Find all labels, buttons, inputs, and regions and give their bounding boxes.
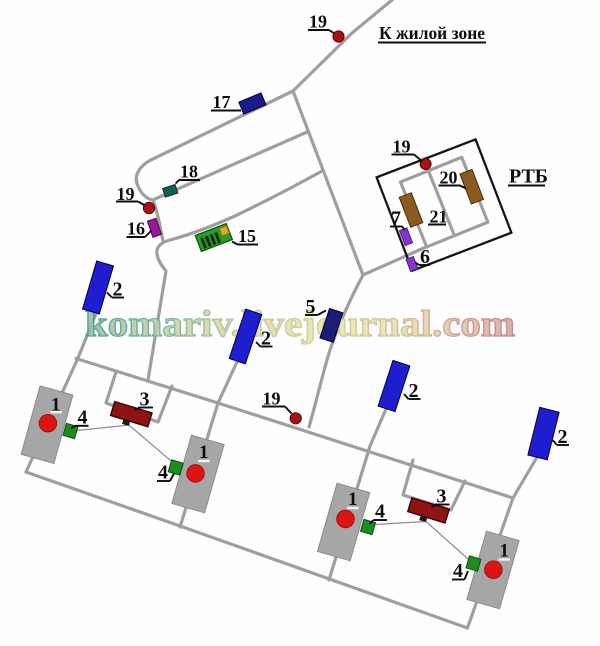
svg-text:1: 1 <box>500 541 510 562</box>
svg-text:1: 1 <box>51 395 61 416</box>
svg-text:3: 3 <box>437 486 447 508</box>
svg-text:2: 2 <box>261 328 271 350</box>
svg-text:РТБ: РТБ <box>509 166 548 188</box>
svg-text:komariv.livejournal.com: komariv.livejournal.com <box>85 304 515 345</box>
svg-text:2: 2 <box>113 279 123 301</box>
svg-text:4: 4 <box>158 462 168 484</box>
svg-text:19: 19 <box>263 389 281 409</box>
svg-text:21: 21 <box>430 207 448 227</box>
svg-text:16: 16 <box>127 219 145 239</box>
svg-text:19: 19 <box>309 12 327 32</box>
svg-text:7: 7 <box>391 208 401 230</box>
svg-text:20: 20 <box>440 168 458 188</box>
svg-text:6: 6 <box>420 246 430 268</box>
svg-text:К жилой зоне: К жилой зоне <box>379 23 485 43</box>
svg-text:1: 1 <box>199 442 209 463</box>
svg-text:5: 5 <box>306 296 316 318</box>
svg-text:3: 3 <box>140 389 150 411</box>
svg-text:2: 2 <box>558 426 568 448</box>
svg-text:2: 2 <box>409 380 419 402</box>
svg-text:15: 15 <box>238 226 256 246</box>
svg-text:4: 4 <box>375 501 385 523</box>
svg-text:4: 4 <box>78 407 88 429</box>
svg-text:19: 19 <box>393 137 411 157</box>
svg-text:1: 1 <box>348 489 358 510</box>
svg-text:19: 19 <box>117 184 135 204</box>
svg-text:17: 17 <box>213 92 231 112</box>
svg-text:18: 18 <box>180 162 198 182</box>
svg-text:4: 4 <box>453 560 463 582</box>
